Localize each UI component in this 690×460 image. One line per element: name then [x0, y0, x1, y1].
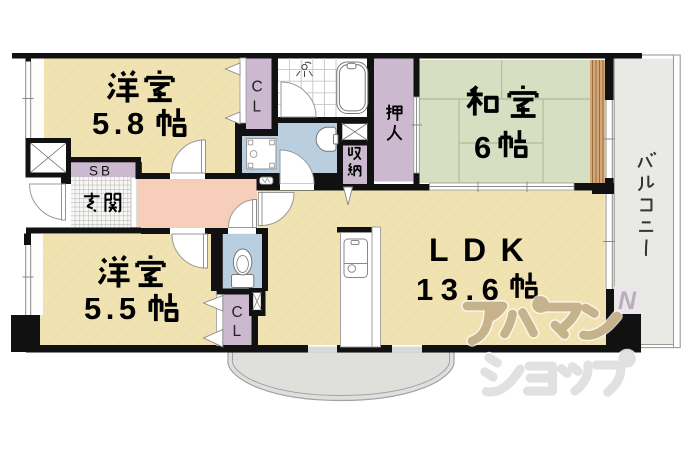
svg-text:5.5: 5.5 [84, 291, 141, 326]
svg-text:N: N [618, 287, 637, 315]
svg-text:L: L [233, 323, 242, 340]
svg-text:C: C [232, 304, 243, 321]
svg-text:SB: SB [89, 164, 113, 179]
svg-text:LDK: LDK [429, 232, 538, 268]
svg-text:6: 6 [474, 130, 491, 165]
svg-text:C: C [252, 79, 263, 96]
svg-text:L: L [253, 99, 262, 116]
svg-text:5.8: 5.8 [92, 106, 149, 141]
